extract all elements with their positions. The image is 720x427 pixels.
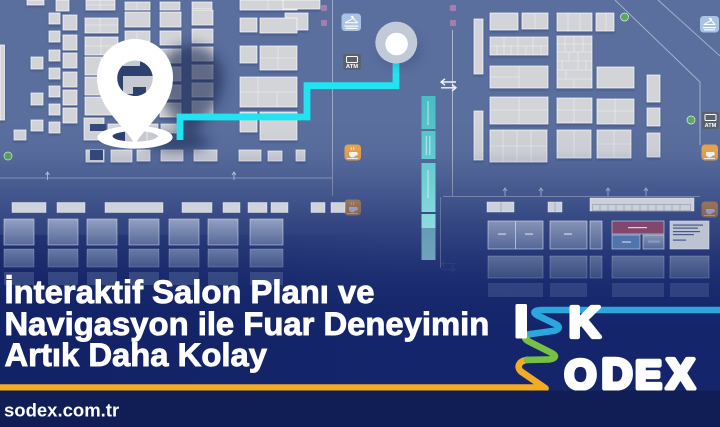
svg-text:ATM: ATM [346, 64, 358, 70]
svg-text:K: K [569, 298, 601, 347]
svg-text:sodex.com.tr: sodex.com.tr [4, 400, 119, 421]
svg-text:Artık Daha Kolay: Artık Daha Kolay [5, 336, 268, 373]
